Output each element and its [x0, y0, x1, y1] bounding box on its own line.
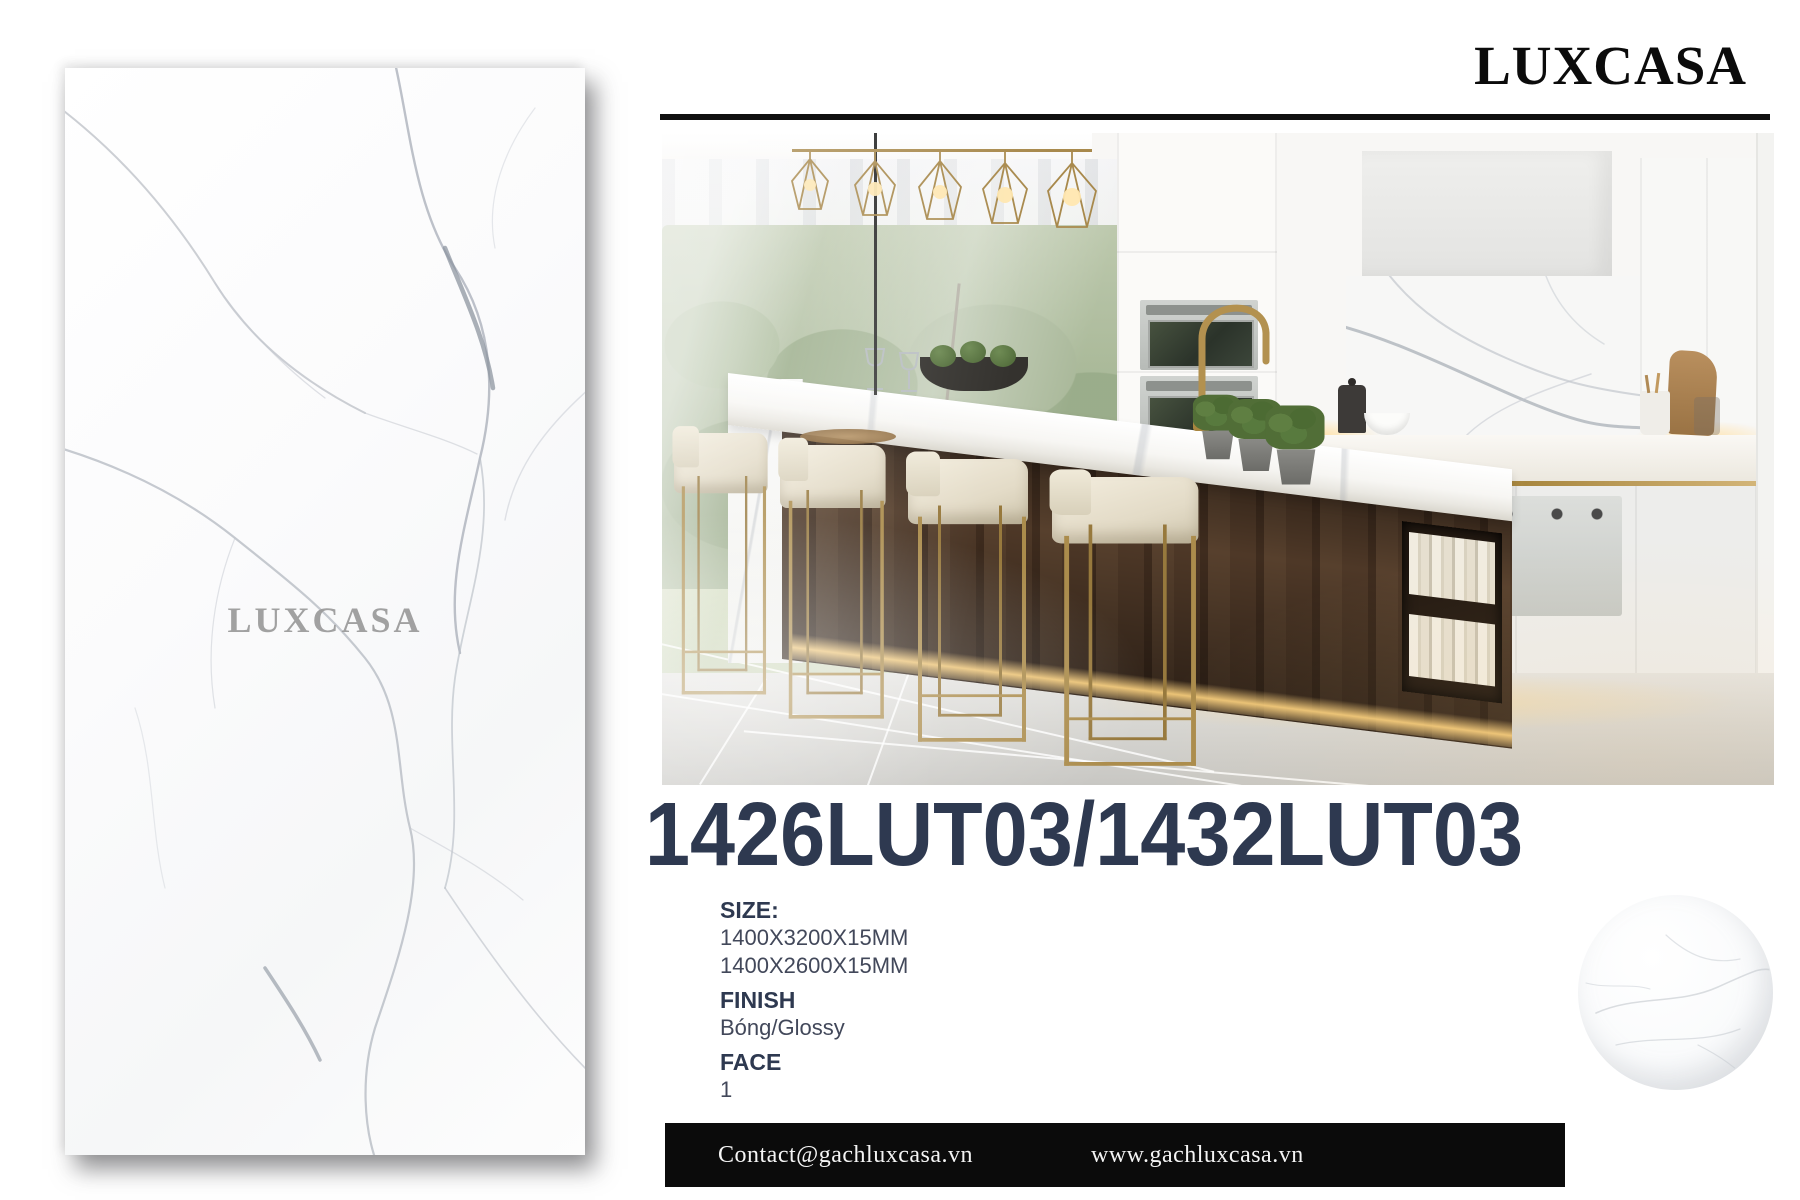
stool-gold-legs — [918, 517, 1026, 742]
contact-email: Contact@gachluxcasa.vn — [718, 1123, 973, 1187]
bar-stool — [780, 445, 886, 715]
counter-canister — [1338, 385, 1366, 433]
marble-sphere — [1578, 895, 1773, 1090]
plant-pot — [1274, 449, 1318, 484]
stool-gold-legs — [789, 501, 884, 719]
stool-gold-legs — [1064, 536, 1196, 766]
product-code: 1426LUT03/1432LUT03 — [645, 790, 1523, 880]
tile-watermark: LUXCASA — [65, 599, 585, 641]
finish-label: FINISH — [720, 986, 908, 1014]
potted-plant — [1265, 405, 1327, 484]
face-label: FACE — [720, 1048, 908, 1076]
marble-tile-sample: LUXCASA — [65, 68, 585, 1155]
watermark-casa: CASA — [313, 600, 423, 640]
pendant-lights — [780, 147, 1110, 247]
floor-grout-line — [744, 730, 1720, 785]
logo-casa: CASA — [1593, 35, 1747, 96]
finish-value: Bóng/Glossy — [720, 1014, 908, 1042]
size-label: SIZE: — [720, 896, 908, 924]
wooden-tray — [800, 429, 896, 444]
brand-logo: LUXCASA — [1474, 34, 1747, 97]
bar-stool — [908, 459, 1028, 738]
glass-jar — [1694, 397, 1720, 435]
logo-lux: LUX — [1474, 35, 1593, 96]
wine-glasses — [862, 345, 926, 395]
website-url: www.gachluxcasa.vn — [1091, 1123, 1304, 1187]
stool-gold-legs — [682, 486, 766, 694]
moss-ball — [960, 341, 986, 363]
kitchen-photo — [662, 133, 1774, 785]
size-value: 1400X3200X15MM — [720, 924, 908, 952]
header-divider-line — [660, 114, 1770, 120]
range-hood — [1362, 151, 1612, 282]
stool-back — [672, 426, 699, 467]
moss-ball — [930, 345, 956, 367]
cabinet-end-panel — [1756, 133, 1774, 673]
shelf-books-row — [1409, 614, 1495, 687]
watermark-lux: LUX — [227, 600, 312, 640]
bar-stool — [674, 433, 768, 691]
footer-contact-bar: Contact@gachluxcasa.vn www.gachluxcasa.v… — [665, 1123, 1565, 1187]
stool-back — [778, 438, 808, 481]
island-open-shelf — [1402, 521, 1502, 703]
utensil-crock — [1640, 391, 1670, 435]
stool-back — [906, 452, 940, 497]
moss-ball — [990, 345, 1016, 367]
size-value: 1400X2600X15MM — [720, 952, 908, 980]
spec-block: SIZE: 1400X3200X15MM 1400X2600X15MM FINI… — [720, 896, 908, 1104]
sphere-veins-graphic — [1578, 895, 1773, 1090]
face-value: 1 — [720, 1076, 908, 1104]
shelf-books-row — [1409, 532, 1495, 605]
plant-leaves — [1265, 405, 1324, 449]
catalog-page: LUXCASA LUXCASA — [0, 0, 1800, 1200]
stool-back — [1050, 469, 1091, 515]
bar-stool — [1052, 477, 1198, 762]
